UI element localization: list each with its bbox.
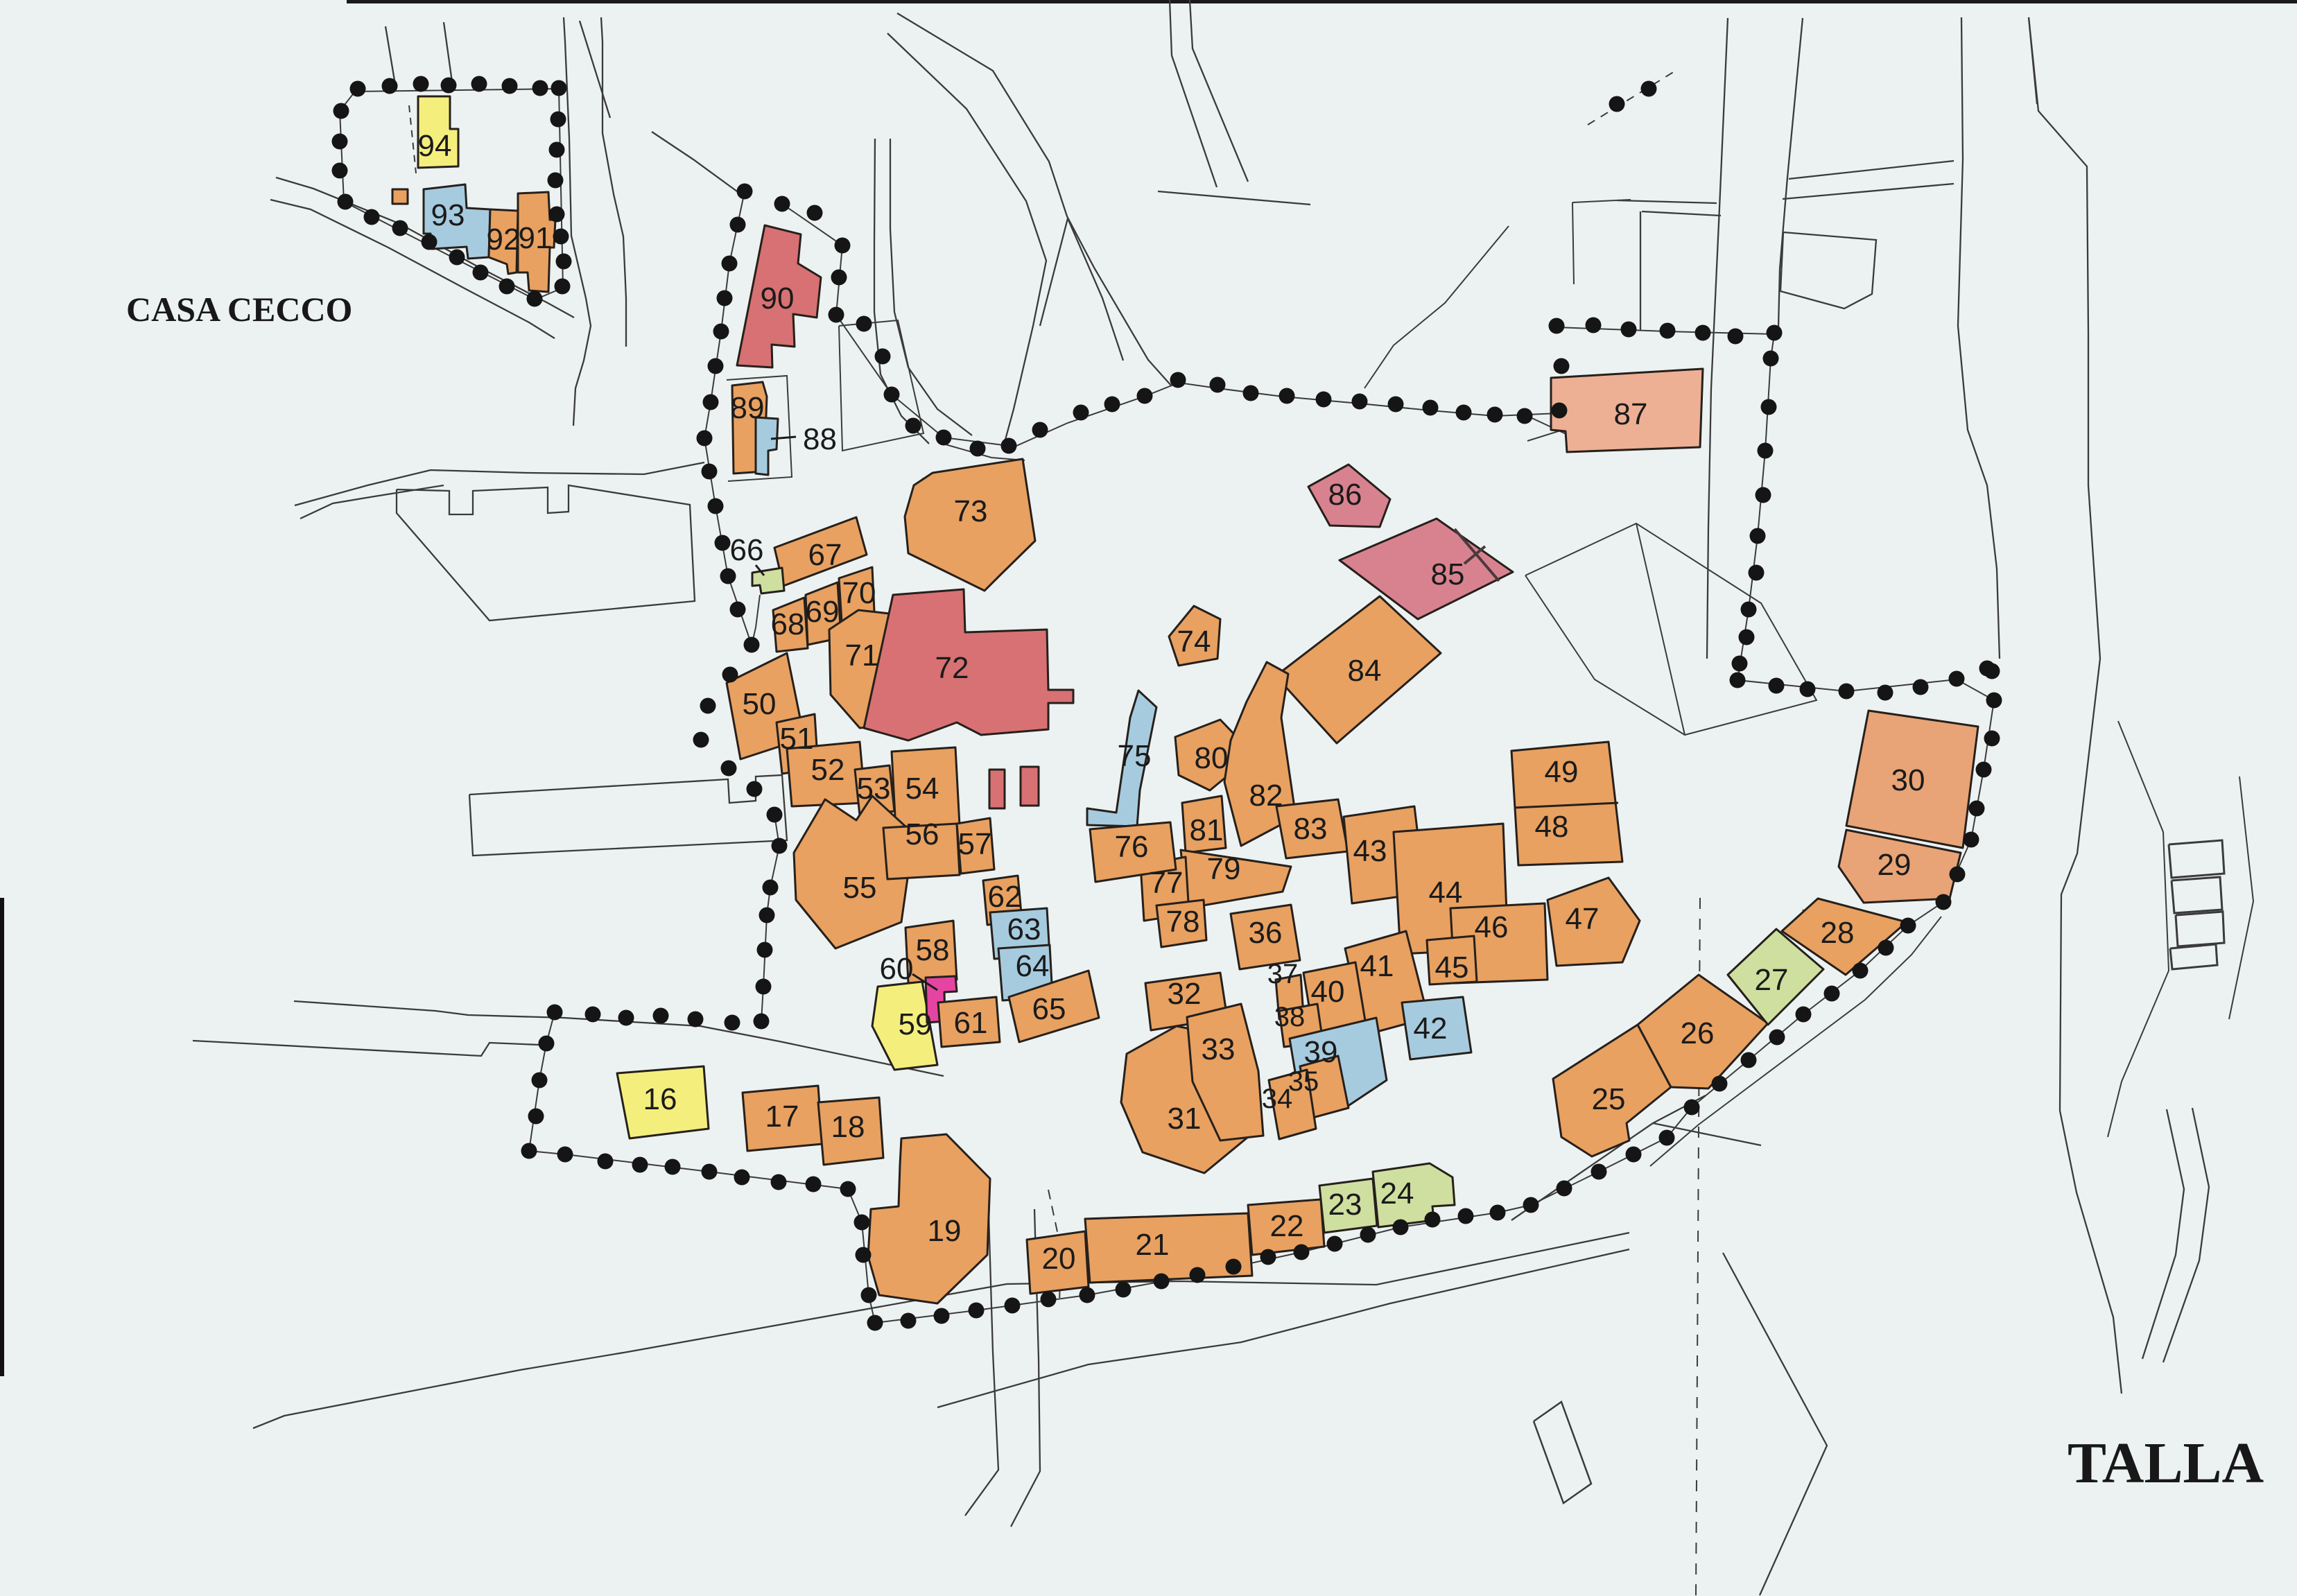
- svg-text:36: 36: [1249, 916, 1283, 950]
- svg-text:53: 53: [857, 772, 891, 806]
- svg-text:82: 82: [1249, 779, 1283, 813]
- svg-text:52: 52: [811, 753, 845, 787]
- svg-text:58: 58: [916, 933, 950, 967]
- svg-text:89: 89: [731, 391, 765, 425]
- svg-text:54: 54: [905, 772, 939, 806]
- svg-text:81: 81: [1190, 813, 1224, 847]
- svg-text:66: 66: [730, 533, 764, 567]
- svg-text:68: 68: [771, 607, 805, 641]
- svg-text:85: 85: [1431, 557, 1465, 591]
- svg-text:32: 32: [1168, 977, 1202, 1011]
- svg-text:75: 75: [1118, 739, 1152, 773]
- svg-text:38: 38: [1274, 1002, 1306, 1032]
- svg-text:92: 92: [487, 223, 521, 257]
- svg-text:25: 25: [1592, 1082, 1626, 1116]
- svg-text:20: 20: [1042, 1242, 1076, 1276]
- svg-text:93: 93: [431, 198, 465, 232]
- svg-text:37: 37: [1267, 959, 1299, 989]
- svg-text:56: 56: [905, 817, 939, 851]
- svg-text:27: 27: [1755, 963, 1789, 997]
- svg-text:21: 21: [1136, 1228, 1170, 1262]
- svg-text:29: 29: [1878, 848, 1912, 882]
- svg-text:62: 62: [988, 880, 1022, 914]
- svg-text:90: 90: [761, 281, 795, 315]
- svg-text:48: 48: [1535, 810, 1569, 844]
- svg-text:55: 55: [843, 871, 877, 905]
- svg-text:50: 50: [743, 687, 777, 721]
- svg-text:42: 42: [1414, 1012, 1448, 1046]
- svg-text:60: 60: [880, 952, 914, 986]
- svg-text:18: 18: [831, 1110, 865, 1144]
- svg-text:67: 67: [808, 538, 842, 572]
- svg-text:59: 59: [899, 1007, 933, 1041]
- svg-text:33: 33: [1202, 1032, 1236, 1066]
- svg-text:84: 84: [1348, 654, 1382, 688]
- svg-text:80: 80: [1195, 741, 1229, 775]
- svg-text:74: 74: [1177, 625, 1211, 659]
- svg-text:45: 45: [1435, 951, 1469, 985]
- svg-text:44: 44: [1429, 876, 1463, 910]
- svg-text:76: 76: [1115, 830, 1149, 864]
- svg-text:86: 86: [1328, 478, 1362, 512]
- svg-text:71: 71: [845, 639, 879, 673]
- svg-text:94: 94: [418, 129, 452, 163]
- svg-text:24: 24: [1380, 1177, 1414, 1211]
- svg-text:16: 16: [643, 1082, 677, 1116]
- svg-text:83: 83: [1294, 812, 1328, 846]
- svg-text:39: 39: [1304, 1035, 1338, 1069]
- svg-text:51: 51: [780, 722, 814, 756]
- svg-text:40: 40: [1311, 975, 1345, 1009]
- svg-text:88: 88: [803, 422, 837, 456]
- svg-text:72: 72: [935, 651, 969, 685]
- svg-text:28: 28: [1821, 916, 1855, 950]
- svg-text:70: 70: [842, 576, 876, 610]
- svg-text:79: 79: [1207, 852, 1241, 886]
- svg-text:64: 64: [1016, 949, 1050, 983]
- svg-text:49: 49: [1545, 755, 1579, 789]
- svg-text:31: 31: [1168, 1102, 1202, 1136]
- svg-text:46: 46: [1475, 910, 1509, 944]
- svg-text:61: 61: [954, 1006, 988, 1040]
- svg-text:43: 43: [1353, 834, 1387, 868]
- svg-text:69: 69: [806, 595, 840, 629]
- svg-text:78: 78: [1166, 905, 1200, 939]
- svg-text:73: 73: [954, 494, 988, 528]
- svg-text:91: 91: [519, 221, 553, 255]
- svg-text:30: 30: [1891, 763, 1925, 797]
- svg-text:65: 65: [1032, 992, 1066, 1026]
- svg-text:TALLA: TALLA: [2068, 1431, 2264, 1495]
- svg-text:26: 26: [1681, 1016, 1715, 1050]
- svg-text:87: 87: [1614, 397, 1648, 431]
- svg-text:77: 77: [1150, 866, 1184, 900]
- svg-text:47: 47: [1566, 902, 1600, 936]
- svg-text:41: 41: [1360, 949, 1394, 983]
- svg-text:19: 19: [928, 1214, 962, 1248]
- svg-text:22: 22: [1270, 1209, 1304, 1243]
- svg-text:23: 23: [1328, 1188, 1362, 1222]
- svg-text:CASA CECCO: CASA CECCO: [126, 290, 352, 329]
- svg-text:34: 34: [1262, 1084, 1293, 1114]
- svg-text:17: 17: [765, 1100, 799, 1134]
- svg-text:63: 63: [1007, 912, 1041, 946]
- svg-text:35: 35: [1288, 1066, 1319, 1097]
- svg-text:57: 57: [958, 827, 992, 861]
